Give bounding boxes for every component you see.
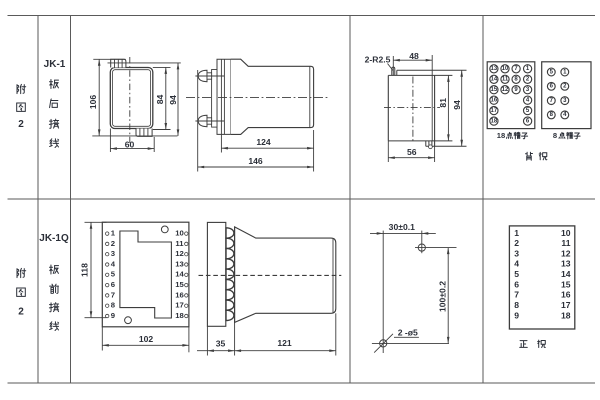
svg-text:6: 6 — [514, 279, 519, 289]
svg-text:JK-1: JK-1 — [44, 59, 66, 70]
svg-text:18: 18 — [491, 118, 498, 124]
svg-text:4: 4 — [111, 259, 116, 268]
svg-text:7: 7 — [514, 290, 519, 300]
svg-text:118: 118 — [79, 263, 89, 277]
svg-text:10: 10 — [561, 228, 571, 238]
svg-text:30±0.1: 30±0.1 — [389, 222, 415, 232]
svg-text:100±0.2: 100±0.2 — [437, 281, 447, 312]
svg-text:2: 2 — [18, 119, 24, 130]
svg-text:11: 11 — [502, 77, 509, 83]
svg-text:9: 9 — [111, 311, 115, 320]
svg-text:11: 11 — [561, 238, 570, 248]
svg-text:35: 35 — [216, 338, 226, 348]
svg-text:2-R2.5: 2-R2.5 — [365, 54, 391, 64]
svg-text:16: 16 — [561, 290, 571, 300]
svg-text:11: 11 — [175, 239, 184, 248]
svg-text:124: 124 — [256, 137, 271, 147]
svg-text:2 -ø5: 2 -ø5 — [398, 328, 418, 338]
svg-text:3: 3 — [111, 249, 115, 258]
svg-text:8: 8 — [553, 131, 557, 140]
svg-text:JK-1Q: JK-1Q — [39, 233, 69, 244]
svg-text:2: 2 — [514, 238, 519, 248]
svg-text:48: 48 — [409, 51, 419, 61]
svg-text:6: 6 — [111, 280, 115, 289]
svg-text:1: 1 — [514, 228, 519, 238]
svg-text:18: 18 — [175, 311, 184, 320]
svg-text:2: 2 — [111, 239, 115, 248]
svg-text:16: 16 — [491, 98, 498, 104]
svg-text:8: 8 — [514, 300, 519, 310]
svg-text:14: 14 — [491, 77, 498, 83]
svg-text:13: 13 — [175, 259, 184, 268]
svg-text:15: 15 — [175, 280, 184, 289]
svg-text:56: 56 — [407, 147, 417, 157]
svg-text:94: 94 — [452, 100, 462, 110]
svg-text:12: 12 — [175, 249, 184, 258]
svg-text:12: 12 — [502, 87, 509, 93]
svg-text:13: 13 — [491, 66, 498, 72]
svg-text:15: 15 — [561, 279, 571, 289]
svg-text:2: 2 — [18, 307, 24, 318]
svg-text:13: 13 — [561, 259, 571, 269]
svg-text:146: 146 — [248, 156, 263, 166]
svg-text:18: 18 — [561, 310, 571, 320]
svg-text:7: 7 — [111, 290, 115, 299]
svg-text:81: 81 — [438, 98, 448, 108]
svg-text:84: 84 — [155, 95, 165, 105]
svg-text:15: 15 — [491, 87, 498, 93]
svg-text:3: 3 — [514, 248, 519, 258]
svg-text:10: 10 — [175, 229, 184, 238]
svg-text:1: 1 — [111, 229, 116, 238]
svg-text:16: 16 — [175, 290, 184, 299]
svg-text:102: 102 — [139, 334, 154, 344]
svg-text:121: 121 — [277, 338, 292, 348]
svg-text:17: 17 — [561, 300, 571, 310]
svg-text:5: 5 — [514, 269, 519, 279]
svg-text:14: 14 — [175, 270, 184, 279]
svg-text:9: 9 — [514, 310, 519, 320]
svg-text:12: 12 — [561, 248, 571, 258]
svg-text:14: 14 — [561, 269, 571, 279]
svg-text:5: 5 — [111, 270, 116, 279]
svg-text:17: 17 — [175, 301, 184, 310]
svg-text:106: 106 — [88, 95, 98, 110]
svg-text:17: 17 — [491, 108, 498, 114]
svg-text:10: 10 — [502, 66, 509, 72]
svg-text:8: 8 — [111, 301, 116, 310]
svg-text:4: 4 — [514, 259, 519, 269]
svg-text:60: 60 — [125, 139, 135, 149]
svg-text:94: 94 — [168, 95, 178, 105]
svg-text:18: 18 — [497, 131, 505, 140]
